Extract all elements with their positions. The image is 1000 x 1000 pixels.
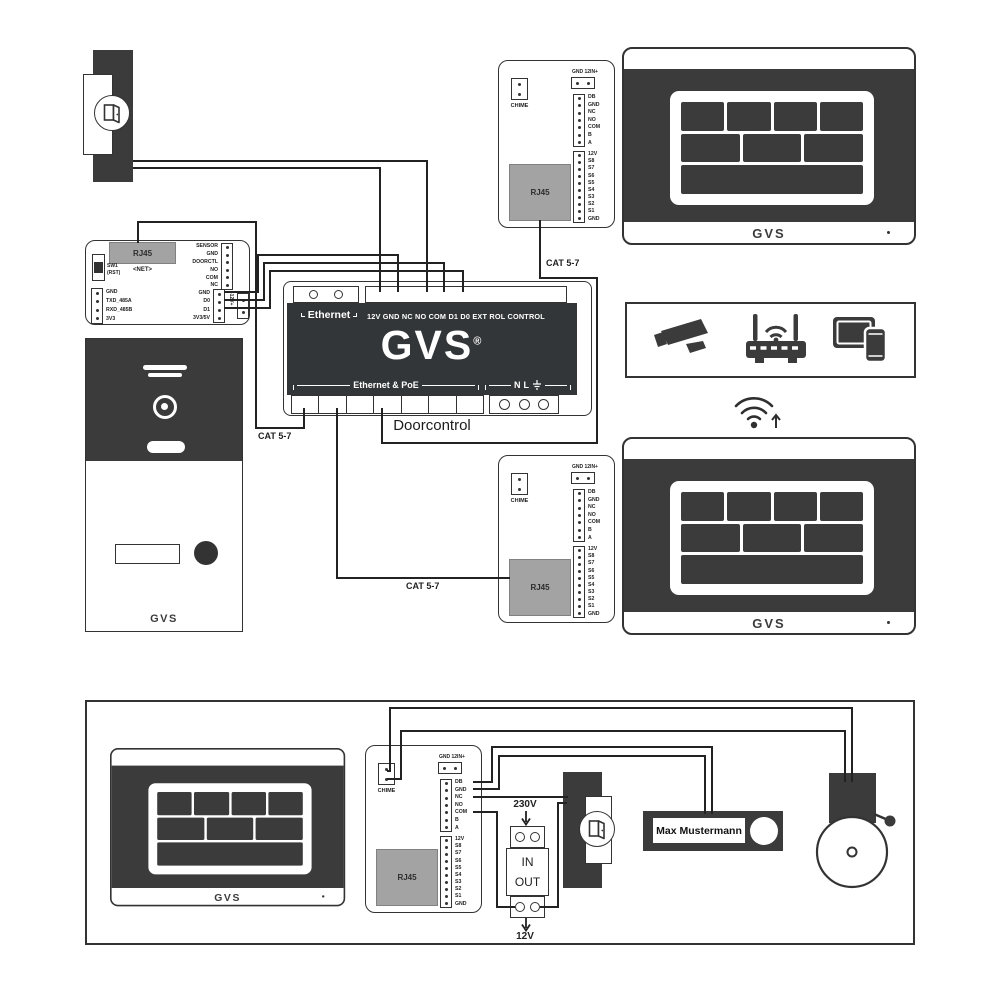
power-label: GND 12IN+: [561, 464, 609, 470]
doorcontrol-caption: Doorcontrol: [352, 417, 512, 434]
monitor-logo: GVS: [112, 891, 344, 903]
terminal-labels: 12V GND NC NO COM D1 D0 EXT ROL CONTROL: [367, 312, 571, 321]
tablet-phone-icon: [832, 315, 890, 365]
ethernet-label: Ethernet: [291, 309, 367, 321]
door-interface-module: RJ45 <NET> SW1(RST) GNDTXD_485ARXD_485B3…: [85, 240, 250, 325]
screen-tiles: [148, 783, 311, 874]
output-voltage-label: 12V: [503, 931, 547, 942]
door-icon: [579, 811, 615, 847]
mains-label: NL: [485, 380, 571, 390]
psu-body: INOUT: [506, 848, 549, 896]
speaker-slot: [143, 365, 187, 370]
doorbell-button: Max Mustermann: [643, 811, 783, 851]
earth-ground-icon: [532, 380, 542, 390]
monitor-logo: GVS: [624, 616, 914, 631]
camera-lens-icon: [153, 395, 177, 419]
doorcontrol-unit: Ethernet 12V GND NC NO COM D1 D0 EXT ROL…: [283, 281, 592, 416]
chime-label: CHIME: [501, 103, 538, 109]
chime-connector: [511, 473, 528, 495]
wiegand-terminals: GNDD0D13V3/5V: [172, 289, 225, 323]
mic-hole: [887, 621, 890, 624]
cable-label: CAT 5-7: [406, 581, 439, 591]
wifi-signal-icon: [727, 383, 787, 433]
monitor-connection-module-1: CHIME GND 12IN+ DBGNDNCNOCOMBA 12VS8S7S6…: [498, 60, 615, 228]
cable-label: CAT 5-7: [258, 431, 291, 441]
mic-hole: [887, 231, 890, 234]
chime-label: CHIME: [501, 498, 538, 504]
screen-tiles: [670, 91, 874, 205]
rj45-port: RJ45: [376, 849, 438, 906]
monitor-connection-module-3: CHIME GND 12IN+ DBGNDNCNOCOMBA 12VS8S7S6…: [365, 745, 482, 913]
signal-terminals: 12VS8S7S6S5S4S3S2S1GND: [573, 151, 600, 223]
power-label: GND 12IN+: [428, 754, 476, 760]
io-terminals: SENSORGNDDOORCTLNOCOMNC: [181, 243, 233, 290]
monitor-logo: GVS: [624, 226, 914, 241]
cctv-camera-icon: [651, 314, 719, 366]
mic-hole: [322, 895, 324, 897]
ethernet-connectors: [293, 286, 359, 303]
chime-connector: [511, 78, 528, 100]
power-connector: [438, 762, 462, 774]
wiring-diagram: RJ45 <NET> SW1(RST) GNDTXD_485ARXD_485B3…: [0, 0, 1000, 1000]
chime-label: CHIME: [368, 788, 405, 794]
power-connector: [571, 472, 595, 484]
rj45-port: RJ45: [509, 559, 571, 616]
status-light: [147, 441, 185, 453]
cable-label: CAT 5-7: [546, 258, 579, 268]
power-label: GND 12IN+: [561, 69, 609, 75]
relay-terminals: DBGNDNCNOCOMBA: [440, 779, 467, 832]
rj45-port: RJ45: [509, 164, 571, 221]
power-terminals: [237, 293, 249, 319]
station-logo: GVS: [86, 613, 242, 625]
psu-output-terminals: [510, 896, 545, 918]
rj45-port: RJ45: [109, 242, 176, 264]
signal-terminals: 12VS8S7S6S5S4S3S2S1GND: [440, 836, 467, 908]
arrow-down-icon: [521, 918, 531, 932]
chime-bell-icon: [812, 768, 904, 892]
relay-terminals: DBGNDNCNOCOMBA: [573, 94, 600, 147]
doorcontrol-front: Ethernet 12V GND NC NO COM D1 D0 EXT ROL…: [287, 303, 577, 395]
sw1-reset-button: [92, 254, 105, 281]
indoor-monitor-2: GVS: [622, 437, 916, 635]
network-devices-box: [625, 302, 916, 378]
indoor-monitor-1: GVS: [622, 47, 916, 245]
call-button: [194, 541, 218, 565]
signal-terminals: 12VS8S7S6S5S4S3S2S1GND: [573, 546, 600, 618]
speaker-slot: [148, 373, 182, 377]
wifi-router-icon: [743, 311, 809, 369]
chime-connector: [378, 763, 395, 785]
terminal-connector: [365, 286, 567, 303]
mains-voltage-label: 230V: [503, 799, 547, 810]
door-icon: [94, 95, 130, 131]
mains-connector: [489, 395, 559, 414]
power-label: -12V+: [228, 292, 234, 320]
monitor-connection-module-2: CHIME GND 12IN+ DBGNDNCNOCOMBA 12VS8S7S6…: [498, 455, 615, 623]
gvs-logo: GVS®: [287, 325, 577, 366]
door-station: GVS: [85, 338, 243, 632]
psu-input-terminals: [510, 826, 545, 848]
push-button: [750, 817, 778, 845]
power-connector: [571, 77, 595, 89]
screen-tiles: [670, 481, 874, 595]
sw1-label: SW1(RST): [107, 263, 120, 276]
rs485-terminals: GNDTXD_485ARXD_485B3V3: [91, 288, 132, 324]
name-plate: [115, 544, 180, 564]
indoor-monitor-3: GVS: [110, 748, 345, 906]
name-tag: Max Mustermann: [653, 818, 745, 843]
arrow-down-icon: [521, 811, 531, 826]
poe-ports: [291, 395, 484, 414]
poe-label: Ethernet & PoE: [293, 380, 479, 390]
relay-terminals: DBGNDNCNOCOMBA: [573, 489, 600, 542]
